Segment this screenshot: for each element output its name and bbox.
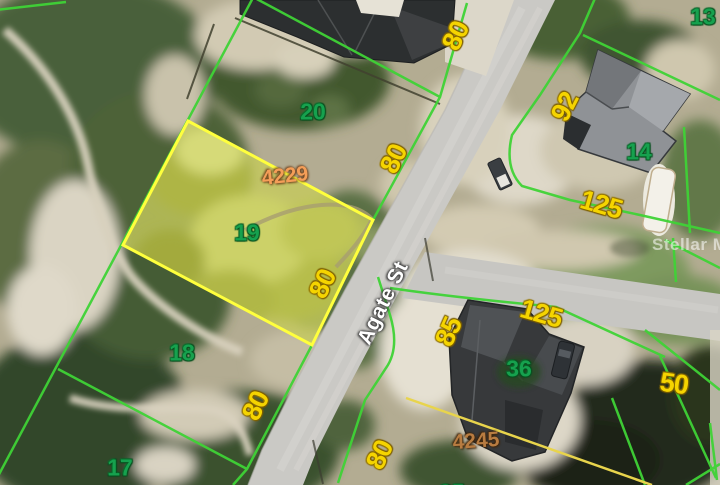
watermark: Stellar MLS (652, 235, 720, 255)
satellite-imagery (0, 0, 720, 485)
bush-shadow (497, 356, 541, 388)
map-viewport[interactable]: 2019181714361335808080808092125125855042… (0, 0, 720, 485)
